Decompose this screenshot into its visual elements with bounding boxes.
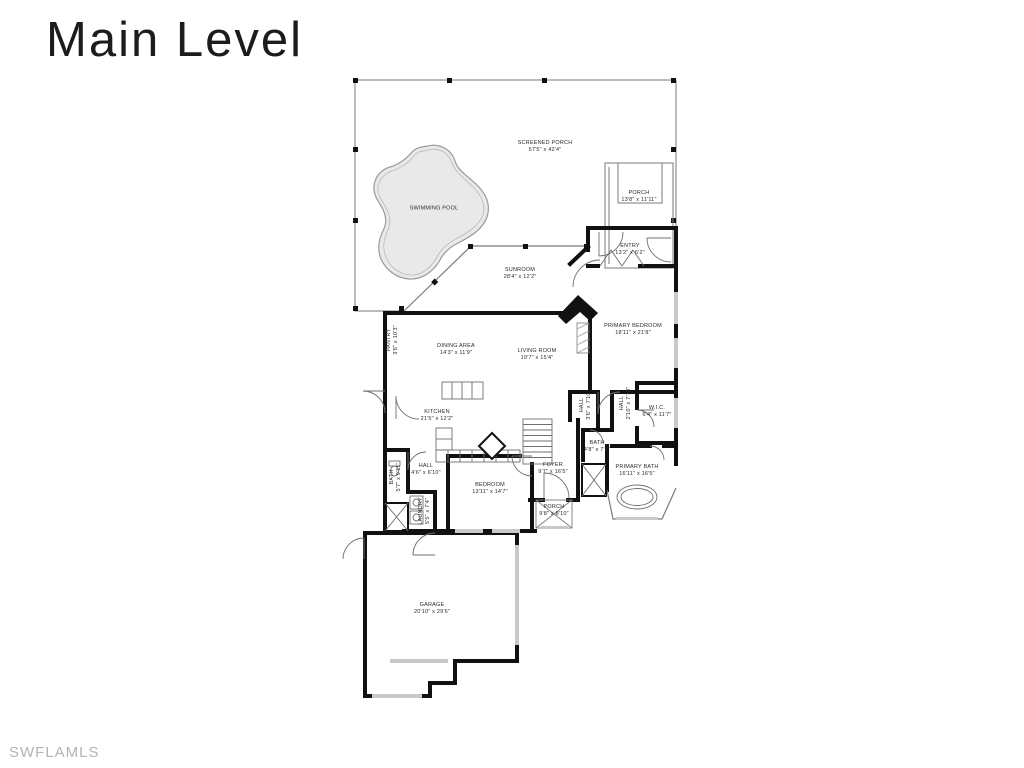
stairs (523, 419, 552, 464)
room-label-living-room: LIVING ROOM 19'7" x 15'4" (518, 348, 557, 362)
room-label-entry: ENTRY 13'2" x 6'2" (615, 243, 645, 257)
utility-closet-x (385, 503, 408, 531)
room-label-hall-b: HALL 2'10" x 7'10" (619, 387, 633, 420)
room-label-sunroom: SUNROOM 28'4" x 12'2" (504, 267, 537, 281)
room-label-hall-a: HALL 3'6" x 7'10" (579, 390, 593, 420)
room-label-bath-left: BATH 5'7" x 9'11" (389, 462, 403, 491)
room-label-laundry: LAUNDRY 5'5" x 7'4" (418, 497, 432, 525)
kitchen-island (442, 382, 483, 399)
foyer-closet-x (582, 464, 606, 496)
room-label-swimming-pool: SWIMMING POOL (410, 205, 459, 212)
floor-plan-page: Main Level (0, 0, 1024, 768)
room-label-porch-rear: PORCH 13'8" x 11'11" (621, 190, 656, 204)
room-label-foyer: FOYER 9'7" x 16'5" (538, 462, 568, 476)
room-label-pantry: PANTRY 3'6" x 10'3" (386, 325, 400, 355)
bathtub (617, 485, 657, 509)
room-label-hall-c: HALL 4'6" x 6'10" (411, 463, 441, 477)
room-label-bedroom: BEDROOM 13'11" x 14'7" (472, 482, 508, 496)
room-label-bath-center: BATH 4'8" x 7'7" (584, 440, 610, 454)
room-label-wic: W.I.C. 6'4" x 11'7" (642, 405, 671, 419)
room-label-dining-area: DINING AREA 14'3" x 11'9" (437, 343, 475, 357)
room-label-primary-bedroom: PRIMARY BEDROOM 18'11" x 21'8" (604, 323, 662, 337)
door-arcs (343, 260, 664, 559)
room-label-garage: GARAGE 20'10" x 29'6" (414, 602, 450, 616)
floor-plan-drawing (0, 0, 1024, 768)
room-label-porch-front: PORCH 9'8" x 8'10" (539, 504, 569, 518)
room-label-screened-porch: SCREENED PORCH 57'5" x 42'4" (518, 140, 573, 154)
room-label-kitchen: KITCHEN 21'5" x 12'2" (421, 409, 454, 423)
primary-bath-bay-window (607, 488, 676, 519)
watermark: SWFLAMLS (9, 744, 100, 761)
room-label-primary-bath: PRIMARY BATH 16'11" x 16'5" (615, 464, 658, 478)
